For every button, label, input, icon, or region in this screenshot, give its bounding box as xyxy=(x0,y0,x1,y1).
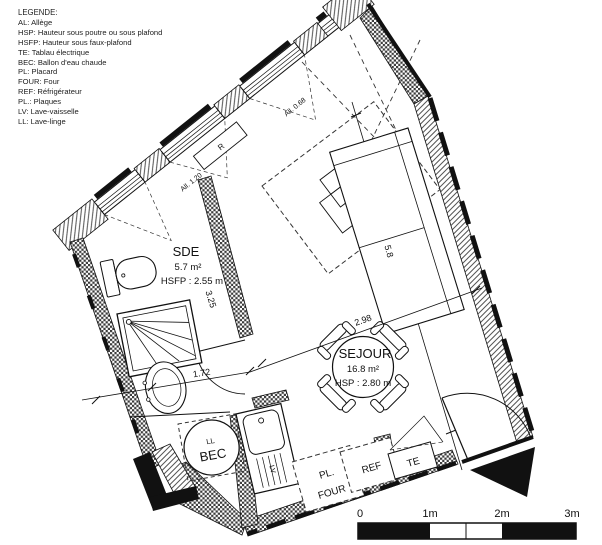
toilet xyxy=(100,251,159,297)
dim-sde-depth: 3.25 xyxy=(204,289,219,309)
legend: LEGENDE: AL: Allège HSP: Hauteur sous po… xyxy=(18,8,162,127)
legend-item: HSFP: Hauteur sous faux-plafond xyxy=(18,38,162,48)
legend-item: TE: Tablau électrique xyxy=(18,48,162,58)
sejour-name: SEJOUR xyxy=(339,346,392,361)
scale-bar: 0 1m 2m 3m xyxy=(357,508,580,539)
legend-item: FOUR: Four xyxy=(18,77,162,87)
scale-2m: 2m xyxy=(494,508,509,520)
sejour-height: HSP : 2.80 m xyxy=(335,378,391,389)
legend-item: BEC: Ballon d'eau chaude xyxy=(18,58,162,68)
sejour-area: 16.8 m² xyxy=(347,364,379,375)
sde-height: HSFP : 2.55 m xyxy=(161,276,223,287)
entrance-door-leaf xyxy=(442,398,468,460)
washer-label: LL xyxy=(206,436,216,446)
panel-triangle xyxy=(390,416,443,450)
dim-sejour-width: 2.98 xyxy=(353,313,373,328)
scale-3m: 3m xyxy=(564,508,579,520)
room-label-sde: SDE 5.7 m² HSFP : 2.55 m xyxy=(161,244,223,287)
legend-item: PL: Placard xyxy=(18,67,162,77)
legend-item: PL.: Plaques xyxy=(18,97,162,107)
legend-item: LV: Lave-vaisselle xyxy=(18,107,162,117)
sde-name: SDE xyxy=(173,244,200,259)
scale-0: 0 xyxy=(357,508,363,520)
floor-plan-page: R All. 1.20 All. 0.68 xyxy=(0,0,602,545)
legend-title: LEGENDE: xyxy=(18,8,162,18)
sde-door-leaf xyxy=(196,340,245,352)
sde-area: 5.7 m² xyxy=(175,262,202,273)
legend-item: LL: Lave-linge xyxy=(18,117,162,127)
allege-sejour-label: All. 0.68 xyxy=(283,97,307,118)
legend-item: HSP: Hauteur sous poutre ou sous plafond xyxy=(18,28,162,38)
kitchen-edge-line xyxy=(130,412,230,417)
legend-item: AL: Allège xyxy=(18,18,162,28)
scale-1m: 1m xyxy=(422,508,437,520)
legend-item: REF: Réfrigérateur xyxy=(18,87,162,97)
